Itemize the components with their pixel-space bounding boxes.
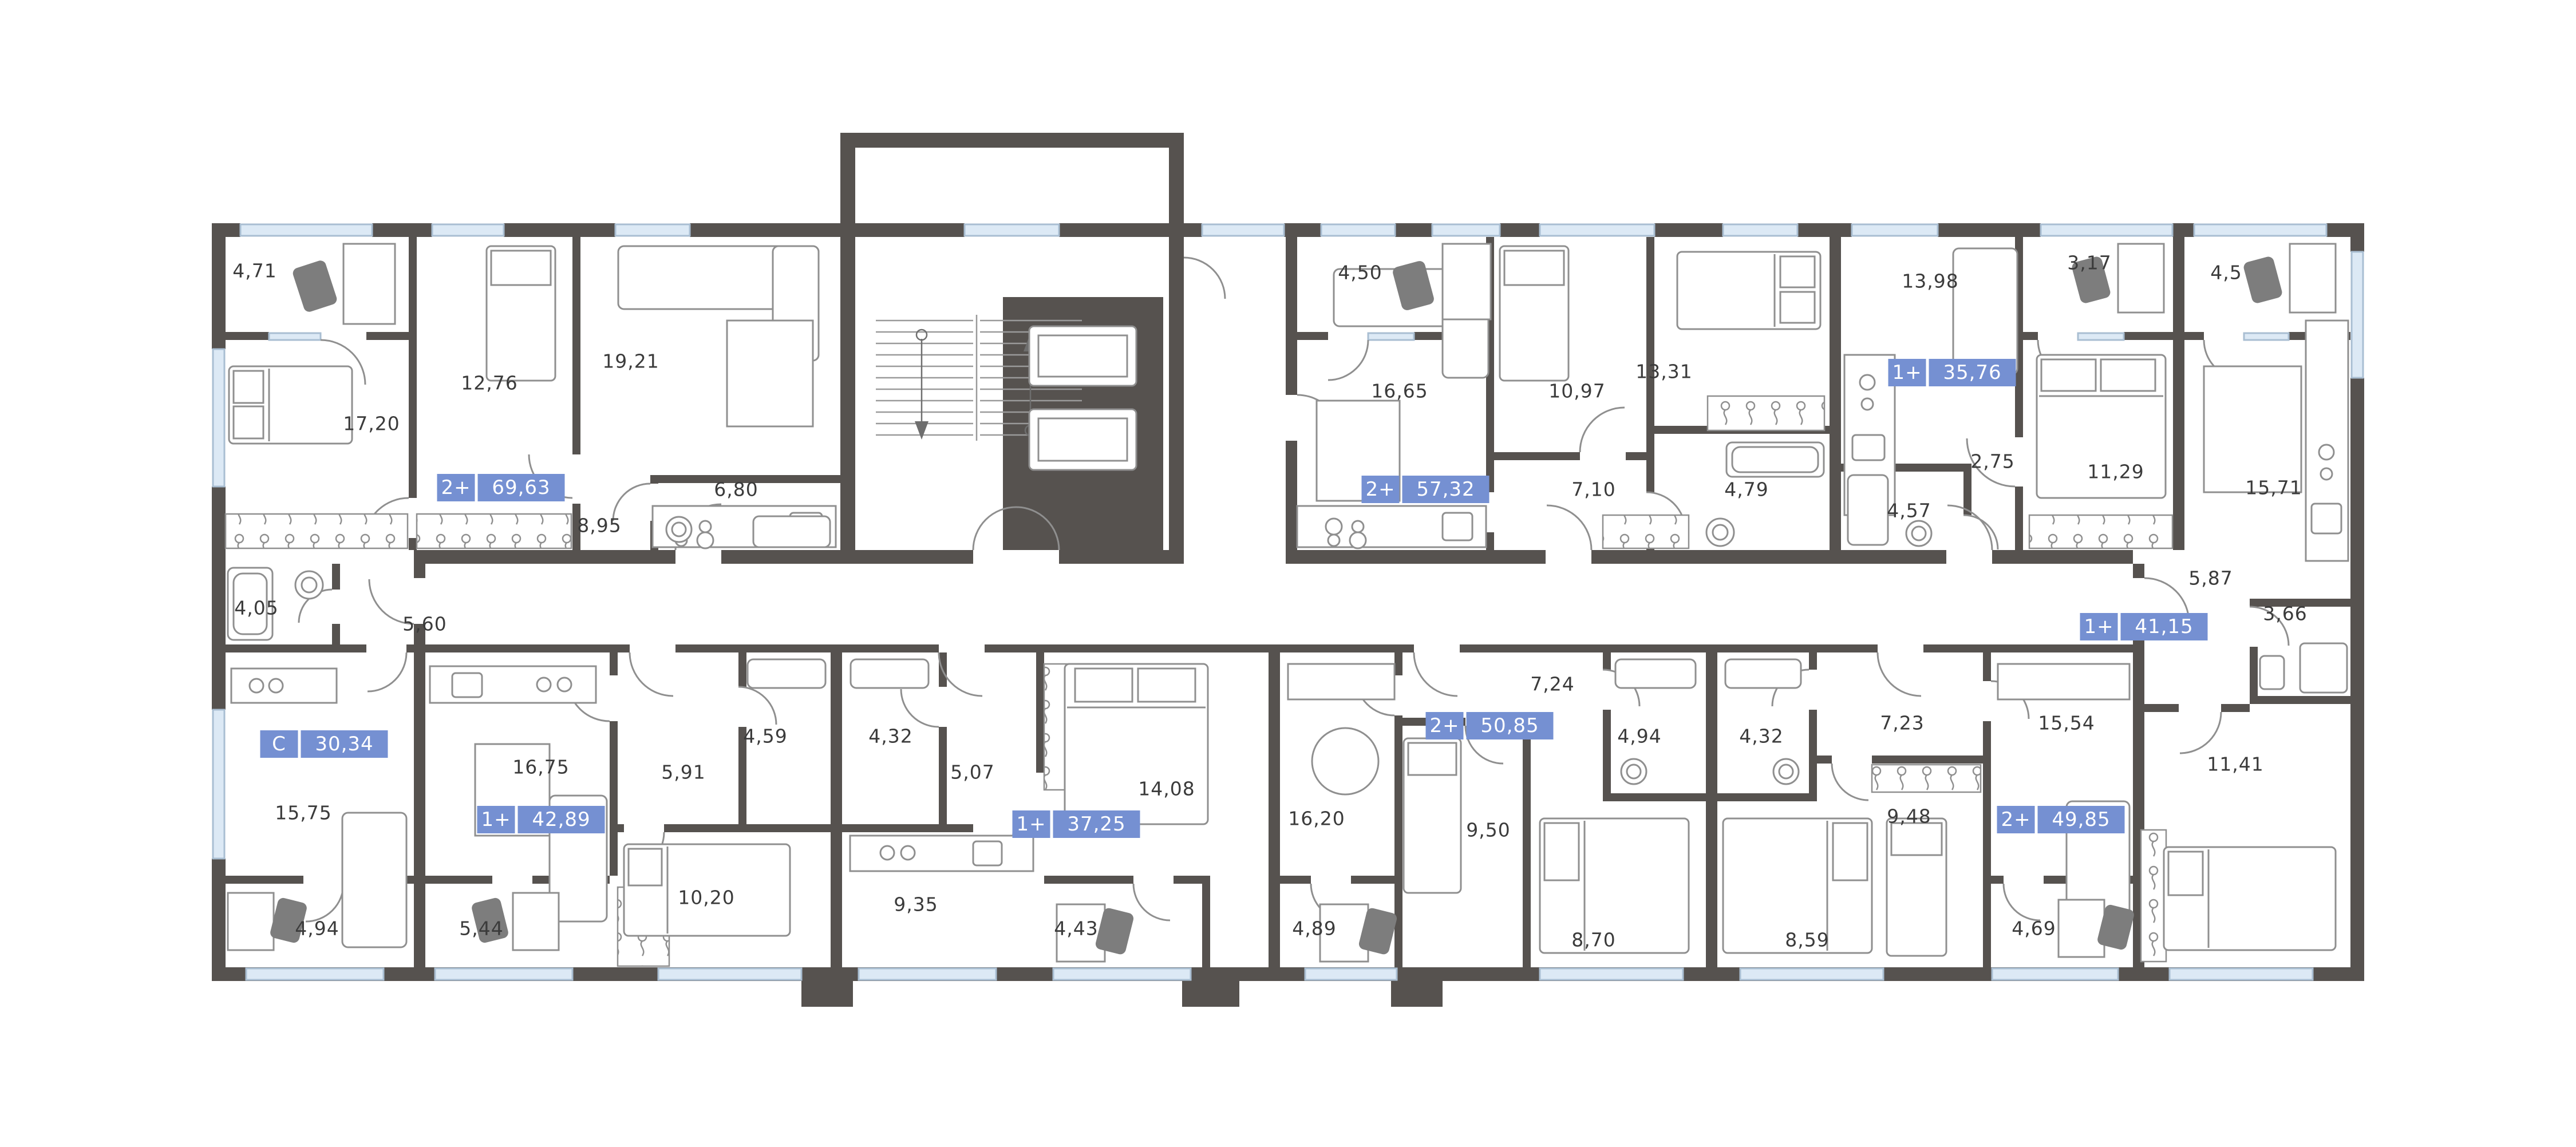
apartment-area: 37,25 bbox=[1053, 810, 1140, 838]
apartment-badge[interactable]: 1+42,89 bbox=[477, 806, 605, 833]
apartment-type: C bbox=[260, 730, 298, 758]
apartment-badge[interactable]: 1+35,76 bbox=[1888, 359, 2016, 386]
bed-icon bbox=[624, 844, 790, 936]
bed-icon bbox=[1677, 252, 1820, 329]
bed-icon bbox=[1065, 664, 1208, 824]
table-icon bbox=[727, 321, 813, 426]
bed-icon bbox=[229, 366, 352, 444]
apartment-type: 1+ bbox=[477, 806, 515, 833]
apartment-type: 2+ bbox=[1997, 806, 2035, 833]
apartment-area: 30,34 bbox=[301, 730, 388, 758]
apartment-area: 42,89 bbox=[518, 806, 605, 833]
bed-icon bbox=[1723, 818, 1872, 953]
sofa-icon bbox=[342, 813, 406, 947]
apartment-type: 1+ bbox=[1888, 359, 1926, 386]
bed-icon bbox=[1404, 738, 1461, 893]
apartment-badge[interactable]: 2+69,63 bbox=[437, 474, 565, 501]
apartment-badge[interactable]: 1+37,25 bbox=[1013, 810, 1140, 838]
floor-plan: 4,7117,2012,7619,218,956,804,5016,6510,9… bbox=[0, 0, 2576, 1147]
apartment-area: 41,15 bbox=[2121, 613, 2208, 640]
apartment-type: 1+ bbox=[2080, 613, 2118, 640]
bed-icon bbox=[2037, 355, 2166, 498]
floor-plan-drawing bbox=[0, 0, 2576, 1147]
apartment-type: 2+ bbox=[1362, 476, 1400, 503]
bed-icon bbox=[2164, 847, 2336, 950]
apartment-badge[interactable]: C30,34 bbox=[260, 730, 388, 758]
bed-icon bbox=[1540, 818, 1689, 953]
apartment-area: 69,63 bbox=[478, 474, 565, 501]
apartment-area: 57,32 bbox=[1402, 476, 1490, 503]
apartment-type: 1+ bbox=[1013, 810, 1050, 838]
apartment-badge[interactable]: 2+49,85 bbox=[1997, 806, 2125, 833]
apartment-badge[interactable]: 1+41,15 bbox=[2080, 613, 2208, 640]
sofa-icon bbox=[1953, 248, 2017, 374]
bed-icon bbox=[1887, 818, 1946, 956]
apartment-type: 2+ bbox=[1426, 712, 1464, 739]
table-icon bbox=[2204, 366, 2301, 492]
apartment-badge[interactable]: 2+50,85 bbox=[1426, 712, 1554, 739]
apartment-badge[interactable]: 2+57,32 bbox=[1362, 476, 1490, 503]
apartment-type: 2+ bbox=[437, 474, 475, 501]
table-icon bbox=[1312, 728, 1378, 794]
apartment-area: 50,85 bbox=[1467, 712, 1554, 739]
bed-icon bbox=[1500, 246, 1568, 381]
bed-icon bbox=[487, 246, 555, 381]
apartment-area: 49,85 bbox=[2038, 806, 2125, 833]
apartment-area: 35,76 bbox=[1929, 359, 2016, 386]
